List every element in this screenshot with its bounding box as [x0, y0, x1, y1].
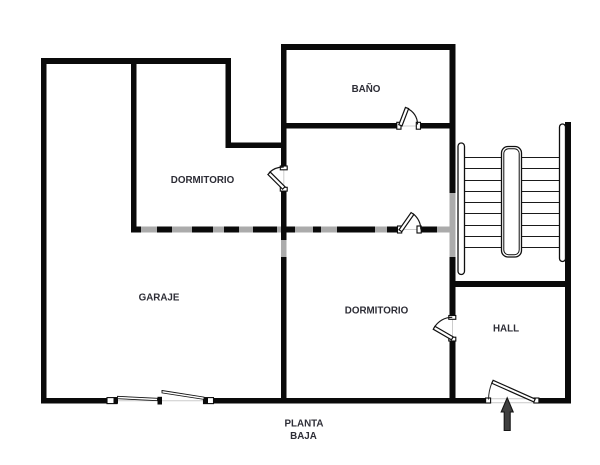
svg-text:PLANTA: PLANTA	[284, 419, 323, 430]
svg-text:BAÑO: BAÑO	[352, 84, 381, 95]
svg-text:HALL: HALL	[493, 324, 519, 335]
svg-text:GARAJE: GARAJE	[139, 293, 180, 304]
svg-text:BAJA: BAJA	[290, 431, 317, 442]
svg-text:DORMITORIO: DORMITORIO	[171, 175, 235, 186]
svg-text:DORMITORIO: DORMITORIO	[345, 306, 409, 317]
